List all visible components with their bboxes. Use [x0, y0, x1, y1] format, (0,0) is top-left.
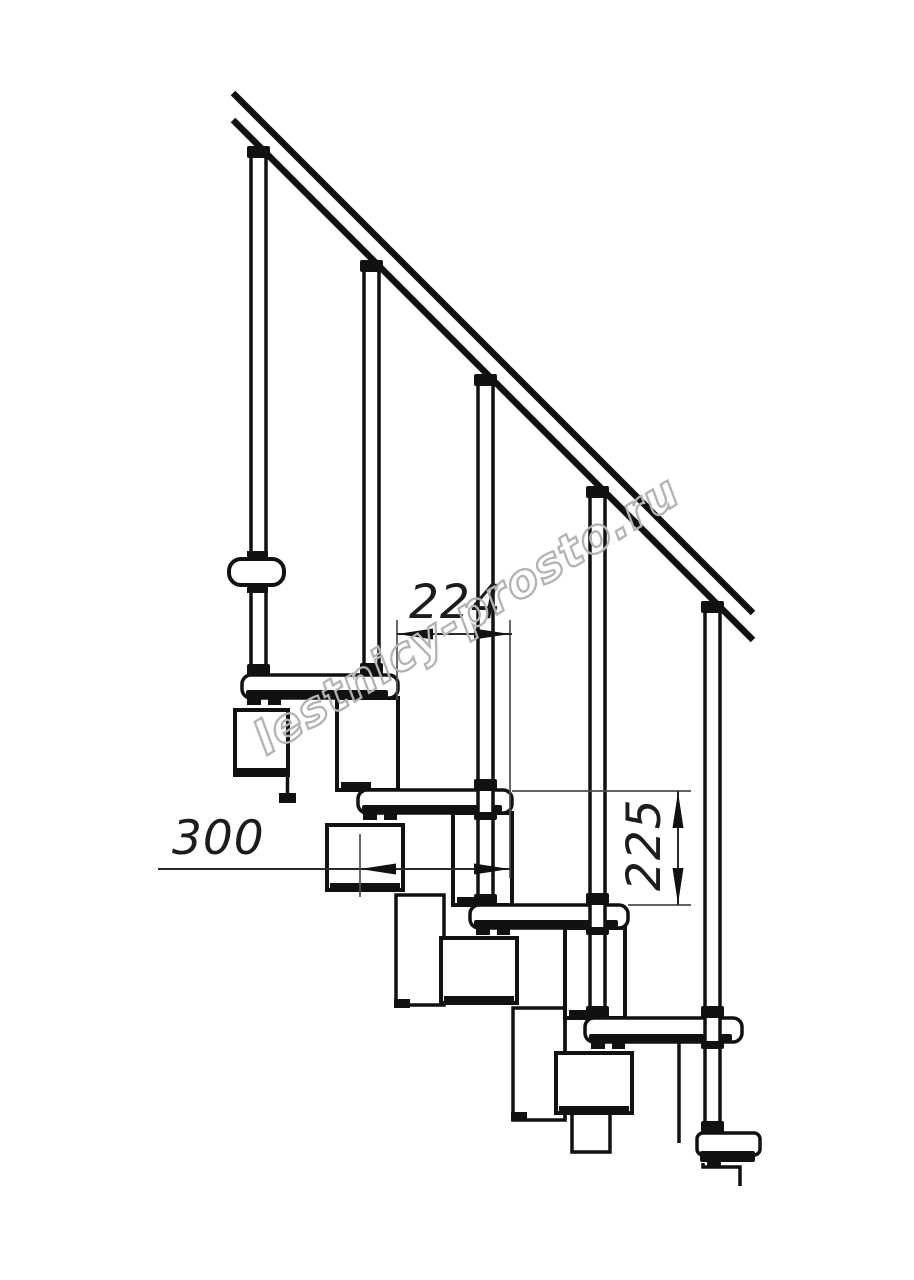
baluster-3-pass-cap: [474, 779, 497, 791]
square-3-thick-bottom: [444, 996, 514, 1003]
staircase-technical-drawing: 224 300 225 lestnicy-prosto.ru: [0, 0, 914, 1280]
tread-5-underside: [700, 1151, 755, 1162]
square-4-thick-bottom: [559, 1106, 629, 1113]
dim-300-label: 300: [172, 811, 265, 866]
square-2-thick-bottom: [330, 883, 400, 890]
square-module-4-foot: [572, 1113, 610, 1152]
square-1-thick-bottom: [237, 768, 286, 775]
tread-4-tab-a: [591, 1041, 605, 1049]
baluster-4-under-nub: [586, 927, 609, 935]
tread-2-tab-b: [384, 812, 397, 820]
chain-nub-3: [511, 1112, 527, 1121]
baluster-4-foot: [586, 1006, 609, 1018]
dim-225-arrow-up: [673, 792, 684, 828]
chain-nub-1: [279, 793, 296, 803]
treads: [242, 675, 760, 1155]
bracket-body: [229, 559, 284, 585]
watermark: lestnicy-prosto.ru: [244, 464, 689, 766]
tread-3-tab-a: [476, 927, 490, 935]
baluster-5-under-nub: [701, 1041, 724, 1049]
baluster-5-foot: [701, 1121, 724, 1133]
baluster-2-tube: [364, 270, 379, 665]
baluster-3-under-nub: [474, 812, 497, 820]
tread-1-tab-a: [247, 697, 261, 705]
square-module-2: [327, 825, 403, 890]
baluster-5-pass-cap: [701, 1006, 724, 1018]
bracket-bottom-tab: [247, 584, 268, 593]
baluster-4-pass-cap: [586, 893, 609, 905]
tread-2-tab-a: [363, 812, 377, 820]
square-module-3: [441, 938, 517, 1003]
dim-225-arrow-down: [673, 868, 684, 904]
tread-3-tab-b: [497, 927, 510, 935]
floor-mount: [703, 1163, 740, 1186]
drawing-page: 224 300 225 lestnicy-prosto.ru: [0, 0, 914, 1280]
floor-mount-outline: [703, 1163, 740, 1186]
dim-225-label: 225: [617, 798, 672, 891]
tread-4-tab-b: [612, 1041, 625, 1049]
square-module-4: [556, 1053, 632, 1113]
baluster-1-foot: [247, 664, 270, 676]
bracket-top-tab: [247, 551, 268, 560]
chain-link-2: [396, 895, 444, 1005]
baluster-3-foot: [474, 894, 497, 906]
neck-1-connector: [341, 782, 371, 791]
chain-nub-2: [394, 999, 410, 1008]
handrail-bracket: [229, 551, 284, 593]
